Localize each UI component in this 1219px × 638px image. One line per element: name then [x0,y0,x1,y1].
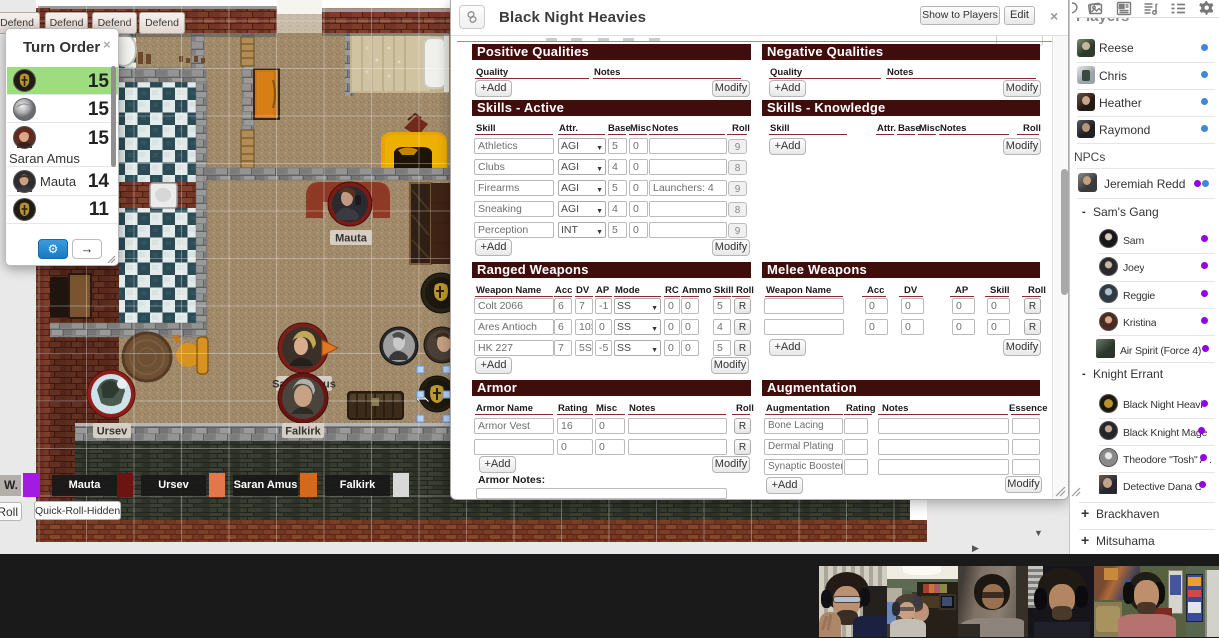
svg-text:Ursev: Ursev [97,426,128,438]
svg-text:Falkirk: Falkirk [285,426,321,438]
svg-text:Mauta: Mauta [335,233,368,245]
